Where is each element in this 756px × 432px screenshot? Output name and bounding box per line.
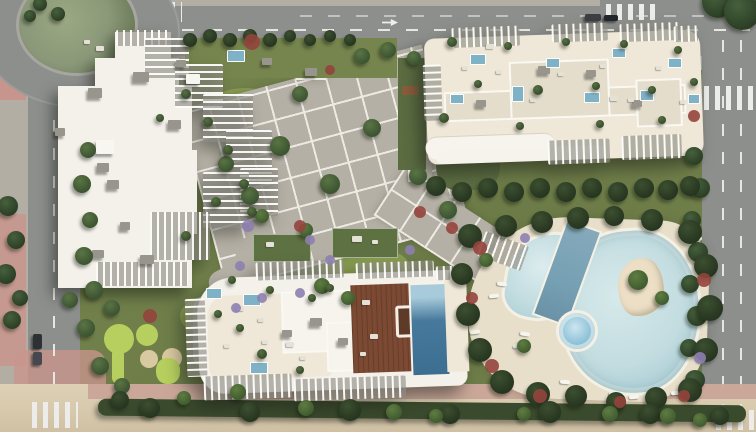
tree	[296, 366, 304, 374]
hedge-bush	[634, 178, 654, 198]
tree	[533, 85, 543, 95]
aerial-render	[0, 0, 756, 432]
tree	[562, 38, 570, 46]
hedge-bush	[111, 391, 129, 409]
tree	[407, 51, 421, 65]
tree	[596, 120, 604, 128]
hedge-bush	[490, 370, 514, 394]
hedge-bush	[608, 182, 628, 202]
tree	[73, 175, 91, 193]
purple-flower-patch	[305, 235, 315, 245]
hedge-bush	[582, 178, 602, 198]
hedge-bush	[697, 295, 723, 321]
tree	[214, 310, 222, 318]
palm-tree	[628, 270, 648, 290]
palm-tree	[479, 253, 493, 267]
tree	[474, 80, 482, 88]
tree	[516, 122, 524, 130]
tree	[504, 42, 512, 50]
hedge-bush	[539, 401, 561, 423]
tree	[223, 145, 233, 155]
palm-tree	[386, 404, 402, 420]
palm-tree	[429, 409, 443, 423]
tree	[218, 156, 234, 172]
tree	[439, 201, 457, 219]
tree	[181, 231, 191, 241]
palm-tree	[255, 209, 269, 223]
tree	[228, 276, 236, 284]
purple-flower-patch	[520, 233, 530, 243]
tree	[270, 136, 290, 156]
red-flower-patch	[143, 309, 157, 323]
red-flower-patch	[485, 359, 499, 373]
hedge-bush	[203, 29, 217, 43]
purple-flower-patch	[231, 303, 241, 313]
tree	[292, 86, 308, 102]
palm-tree	[298, 400, 314, 416]
tree	[0, 196, 18, 216]
hedge-bush	[339, 399, 361, 421]
hedge-bush	[140, 398, 160, 418]
hedge-bush	[183, 33, 197, 47]
tree	[82, 212, 98, 228]
red-flower-patch	[446, 222, 458, 234]
tree	[674, 46, 682, 54]
tree	[380, 42, 396, 58]
tree	[648, 86, 656, 94]
tree	[658, 116, 666, 124]
hedge-bush	[440, 404, 460, 424]
tree	[62, 292, 78, 308]
palm-tree	[693, 413, 707, 427]
tree	[85, 281, 103, 299]
hedge-bush	[680, 176, 700, 196]
tree	[211, 197, 221, 207]
tree	[181, 89, 191, 99]
hedge-bush	[468, 338, 492, 362]
tree	[156, 114, 164, 122]
tree	[320, 174, 340, 194]
tree	[77, 319, 95, 337]
hedge-bush	[711, 407, 729, 425]
hedge-bush	[556, 182, 576, 202]
hedge-bush	[284, 30, 296, 42]
hedge-bush	[240, 402, 260, 422]
palm-tree	[517, 407, 531, 421]
tree	[247, 207, 257, 217]
red-flower-patch	[414, 206, 426, 218]
tree	[51, 7, 65, 21]
tree	[620, 40, 628, 48]
red-flower-patch	[244, 34, 260, 50]
hedge-bush	[451, 263, 473, 285]
hedge-bush	[531, 211, 553, 233]
tree	[24, 10, 36, 22]
hedge-bush	[223, 33, 237, 47]
tree	[326, 284, 334, 292]
tree	[308, 294, 316, 302]
hedge-bush	[641, 209, 663, 231]
hedge-bush	[478, 178, 498, 198]
purple-flower-patch	[257, 293, 267, 303]
tree	[104, 300, 120, 316]
purple-flower-patch	[694, 352, 706, 364]
red-flower-patch	[473, 241, 487, 255]
palm-tree	[517, 339, 531, 353]
palm-tree	[655, 291, 669, 305]
hedge-bush	[565, 385, 587, 407]
tree	[447, 37, 457, 47]
purple-flower-patch	[242, 220, 254, 232]
tree	[685, 147, 703, 165]
tree	[75, 247, 93, 265]
red-flower-patch	[325, 65, 335, 75]
tree	[241, 187, 259, 205]
tree	[91, 357, 109, 375]
hedge-bush	[344, 34, 356, 46]
tree	[236, 324, 244, 332]
hedge-bush	[263, 33, 277, 47]
tree	[203, 117, 213, 127]
purple-flower-patch	[405, 245, 415, 255]
red-flower-patch	[614, 396, 626, 408]
red-flower-patch	[678, 390, 690, 402]
tree	[439, 113, 449, 123]
tree	[0, 264, 16, 284]
tree	[690, 78, 698, 86]
red-flower-patch	[466, 292, 478, 304]
tree	[266, 286, 274, 294]
tree	[239, 179, 249, 189]
tree	[12, 290, 28, 306]
hedge-bush	[640, 404, 660, 424]
tree	[409, 167, 427, 185]
tree	[354, 48, 370, 64]
palm-tree	[230, 384, 246, 400]
red-flower-patch	[697, 273, 711, 287]
red-flower-patch	[533, 389, 547, 403]
tree	[363, 119, 381, 137]
palm-tree	[177, 391, 191, 405]
hedge-bush	[452, 182, 472, 202]
hedge-bush	[504, 182, 524, 202]
purple-flower-patch	[295, 288, 305, 298]
hedge-bush	[324, 30, 336, 42]
purple-flower-patch	[325, 255, 335, 265]
hedge-bush	[567, 207, 589, 229]
palm-tree	[660, 408, 676, 424]
hedge-bush	[530, 178, 550, 198]
tree	[7, 231, 25, 249]
hedge-bush	[456, 302, 480, 326]
red-flower-patch	[294, 220, 306, 232]
hedge-bush	[604, 206, 624, 226]
tree	[33, 0, 47, 11]
red-flower-patch	[688, 110, 700, 122]
tree	[3, 311, 21, 329]
vegetation-layer	[0, 0, 756, 432]
palm-tree	[341, 291, 355, 305]
tree	[592, 82, 600, 90]
hedge-bush	[495, 215, 517, 237]
tree	[724, 0, 756, 30]
purple-flower-patch	[235, 261, 245, 271]
hedge-bush	[426, 176, 446, 196]
hedge-bush	[304, 34, 316, 46]
palm-tree	[602, 406, 618, 422]
tree	[80, 142, 96, 158]
hedge-bush	[658, 180, 678, 200]
hedge-bush	[678, 220, 702, 244]
tree	[257, 349, 267, 359]
